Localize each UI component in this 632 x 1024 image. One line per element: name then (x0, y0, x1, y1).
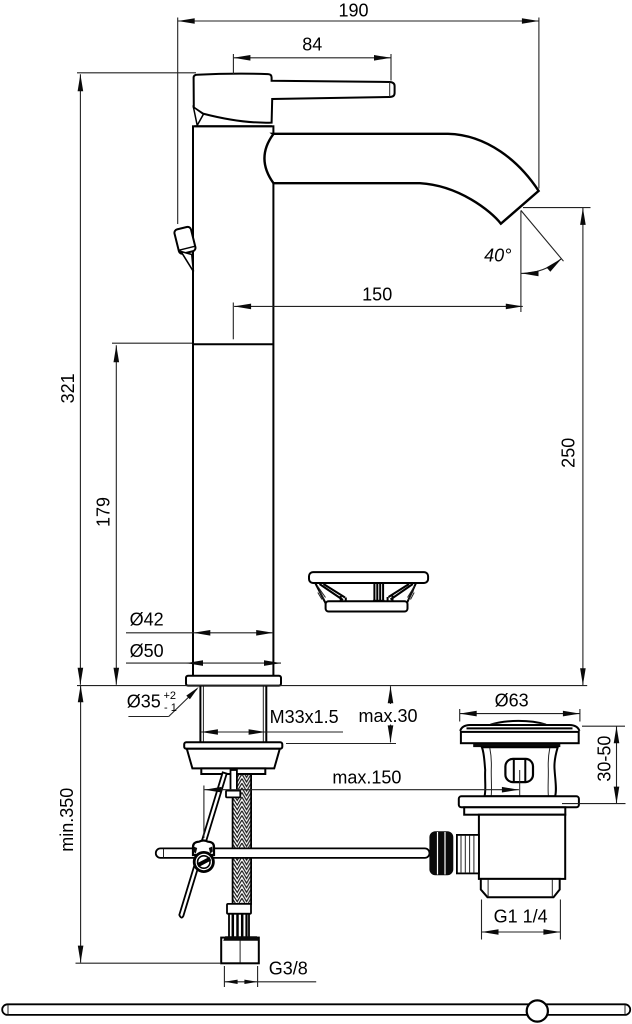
svg-text:179: 179 (94, 497, 114, 527)
svg-text:84: 84 (302, 35, 322, 55)
svg-text:- 1: - 1 (164, 702, 177, 714)
svg-text:+2: +2 (164, 690, 177, 702)
svg-text:G3/8: G3/8 (269, 959, 308, 979)
svg-text:max.150: max.150 (332, 768, 401, 788)
svg-text:min.350: min.350 (57, 788, 77, 852)
svg-text:max.30: max.30 (359, 706, 418, 726)
svg-text:250: 250 (559, 438, 579, 468)
svg-text:30-50: 30-50 (595, 736, 615, 782)
svg-text:321: 321 (58, 373, 78, 403)
svg-text:G1 1/4: G1 1/4 (494, 907, 548, 927)
svg-text:Ø63: Ø63 (495, 691, 529, 711)
svg-text:190: 190 (338, 1, 368, 21)
svg-text:Ø35: Ø35 (127, 692, 161, 712)
svg-text:150: 150 (362, 285, 392, 305)
svg-text:40°: 40° (484, 246, 511, 266)
svg-text:Ø42: Ø42 (130, 610, 164, 630)
svg-text:M33x1.5: M33x1.5 (270, 707, 339, 727)
svg-text:Ø50: Ø50 (130, 641, 164, 661)
